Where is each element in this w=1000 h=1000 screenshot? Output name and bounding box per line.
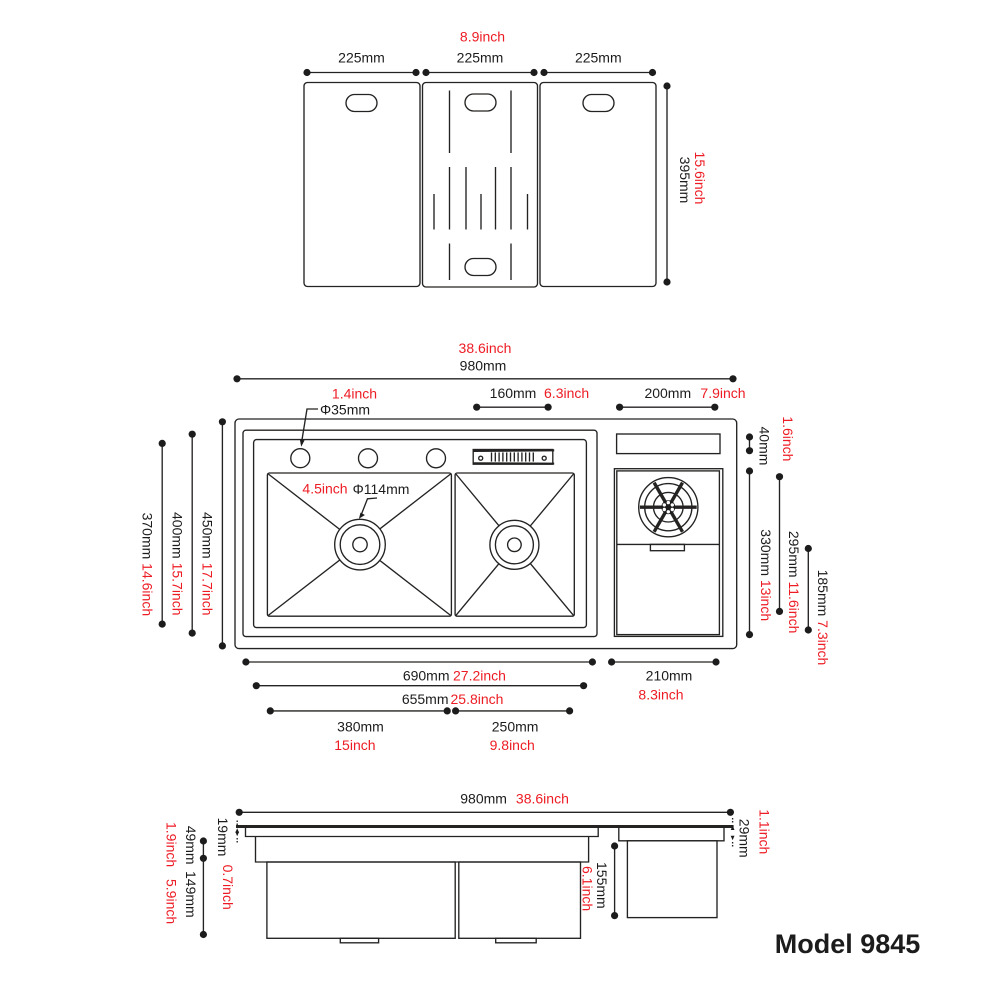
svg-text:19mm: 19mm [215,818,231,857]
svg-text:250mm: 250mm [492,719,539,735]
svg-text:Model 9845: Model 9845 [775,929,921,959]
svg-text:980mm: 980mm [460,791,507,807]
svg-text:380mm: 380mm [337,719,384,735]
svg-text:1.4inch: 1.4inch [332,385,377,401]
svg-text:295mm 11.6inch: 295mm 11.6inch [786,531,802,633]
svg-text:38.6inch: 38.6inch [459,340,512,356]
svg-text:1.9inch: 1.9inch [163,822,179,867]
svg-text:210mm: 210mm [646,667,693,683]
svg-text:370mm 14.6inch: 370mm 14.6inch [139,513,155,617]
svg-text:8.9inch: 8.9inch [460,29,505,45]
svg-text:6.3inch: 6.3inch [544,385,589,401]
svg-text:29mm: 29mm [736,819,752,858]
svg-text:185mm 7.3inch: 185mm 7.3inch [815,570,831,666]
svg-text:655mm: 655mm [402,691,449,707]
svg-text:27.2inch: 27.2inch [453,667,506,683]
svg-text:149mm: 149mm [183,871,199,918]
svg-text:15.6inch: 15.6inch [692,152,708,205]
svg-text:400mm 15.7inch: 400mm 15.7inch [170,512,186,616]
svg-text:1.6inch: 1.6inch [780,416,796,461]
svg-text:5.9inch: 5.9inch [163,879,179,924]
svg-text:160mm: 160mm [490,385,537,401]
svg-text:8.3inch: 8.3inch [638,687,683,703]
svg-text:225mm: 225mm [338,49,385,65]
svg-text:690mm: 690mm [403,667,450,683]
svg-text:980mm: 980mm [460,358,507,374]
svg-text:Φ114mm: Φ114mm [353,481,410,497]
svg-text:1.1inch: 1.1inch [757,809,773,854]
svg-text:25.8inch: 25.8inch [451,691,504,707]
svg-text:9.8inch: 9.8inch [490,737,535,753]
svg-text:0.7inch: 0.7inch [220,865,236,910]
svg-text:40mm: 40mm [757,427,773,466]
svg-text:4.5inch: 4.5inch [302,481,347,497]
svg-text:49mm: 49mm [183,826,199,865]
svg-text:395mm: 395mm [677,157,693,204]
svg-text:6.1inch: 6.1inch [580,866,596,911]
svg-text:7.9inch: 7.9inch [700,385,745,401]
svg-text:450mm 17.7inch: 450mm 17.7inch [200,512,216,616]
svg-text:Φ35mm: Φ35mm [320,402,370,418]
svg-text:225mm: 225mm [575,49,622,65]
svg-text:200mm: 200mm [644,385,691,401]
svg-text:225mm: 225mm [457,49,504,65]
svg-text:15inch: 15inch [334,737,375,753]
svg-text:330mm 13inch: 330mm 13inch [758,529,774,621]
svg-text:38.6inch: 38.6inch [516,791,569,807]
